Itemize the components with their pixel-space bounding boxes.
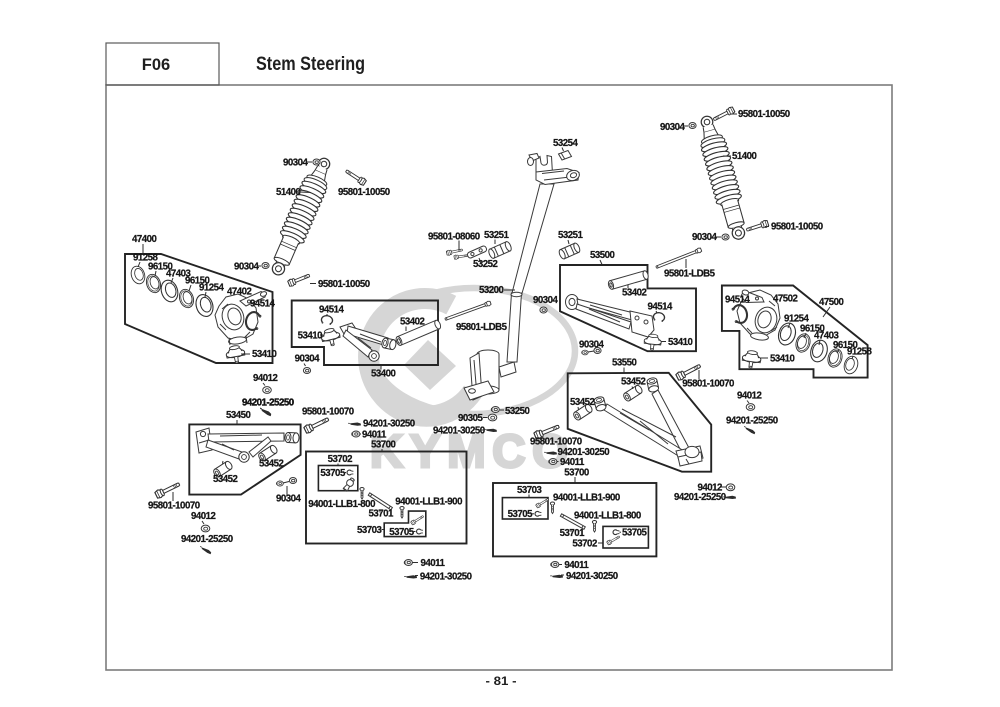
svg-text:94001-LLB1-900: 94001-LLB1-900	[395, 496, 462, 507]
svg-text:53452: 53452	[213, 474, 238, 485]
svg-text:53705: 53705	[622, 528, 648, 539]
svg-text:53702: 53702	[328, 454, 353, 465]
svg-text:53452: 53452	[621, 377, 646, 388]
svg-text:53410: 53410	[252, 349, 277, 360]
svg-text:F06: F06	[142, 56, 170, 74]
svg-text:47500: 47500	[819, 297, 844, 308]
svg-text:90304: 90304	[660, 122, 686, 133]
svg-text:94011: 94011	[421, 558, 446, 569]
svg-text:53702: 53702	[572, 538, 597, 549]
svg-text:- 81 -: - 81 -	[486, 674, 517, 688]
svg-text:94201-25250: 94201-25250	[242, 398, 294, 409]
svg-text:94011: 94011	[560, 457, 585, 468]
svg-text:90304: 90304	[283, 158, 309, 169]
svg-text:47502: 47502	[773, 294, 798, 305]
svg-text:90304: 90304	[276, 494, 302, 505]
svg-text:53251: 53251	[484, 230, 510, 241]
svg-text:53701: 53701	[560, 528, 586, 539]
svg-text:90305: 90305	[458, 413, 484, 424]
svg-text:94201-25250: 94201-25250	[726, 416, 778, 427]
svg-text:51400: 51400	[732, 151, 757, 162]
svg-text:51400: 51400	[276, 187, 301, 198]
svg-text:53402: 53402	[622, 288, 647, 299]
svg-text:47402: 47402	[227, 287, 252, 298]
svg-text:94514: 94514	[648, 301, 674, 312]
svg-text:53410: 53410	[770, 354, 795, 365]
svg-text:53402: 53402	[400, 317, 425, 328]
svg-text:53250: 53250	[505, 406, 530, 417]
svg-text:94201-25250: 94201-25250	[674, 492, 726, 503]
svg-text:94514: 94514	[319, 305, 345, 316]
svg-text:94201-25250: 94201-25250	[181, 534, 233, 545]
svg-text:90304: 90304	[234, 262, 260, 273]
svg-text:91254: 91254	[199, 283, 225, 294]
svg-text:94514: 94514	[725, 295, 751, 306]
svg-text:94001-LLB1-800: 94001-LLB1-800	[308, 499, 375, 510]
svg-text:94201-30250: 94201-30250	[566, 571, 618, 582]
svg-text:53450: 53450	[226, 410, 251, 421]
svg-text:95801-10070: 95801-10070	[148, 501, 200, 512]
svg-text:95801-LDB5: 95801-LDB5	[456, 322, 508, 333]
svg-text:53703: 53703	[517, 485, 543, 496]
svg-text:53705: 53705	[389, 527, 415, 538]
svg-text:53700: 53700	[564, 468, 589, 479]
svg-text:95801-10050: 95801-10050	[318, 279, 370, 290]
svg-text:53550: 53550	[612, 358, 637, 369]
svg-text:53500: 53500	[590, 250, 615, 261]
svg-text:94012: 94012	[253, 373, 278, 384]
svg-text:53705: 53705	[508, 509, 534, 520]
svg-text:53251: 53251	[558, 230, 584, 241]
svg-text:94514: 94514	[250, 299, 276, 310]
svg-text:53705: 53705	[320, 468, 346, 479]
svg-text:53200: 53200	[479, 285, 504, 296]
svg-text:90304: 90304	[533, 295, 559, 306]
svg-text:91258: 91258	[847, 347, 873, 358]
svg-text:53452: 53452	[259, 459, 284, 470]
svg-text:53410: 53410	[668, 337, 693, 348]
svg-text:95801-08060: 95801-08060	[428, 232, 480, 243]
svg-text:47400: 47400	[132, 234, 157, 245]
svg-text:94201-30250: 94201-30250	[363, 419, 415, 430]
svg-text:53452: 53452	[570, 397, 595, 408]
svg-text:53700: 53700	[371, 440, 396, 451]
svg-text:95801-10050: 95801-10050	[338, 187, 390, 198]
svg-text:53254: 53254	[553, 138, 579, 149]
svg-text:Stem Steering: Stem Steering	[256, 54, 365, 75]
svg-text:94012: 94012	[191, 511, 216, 522]
svg-text:53701: 53701	[369, 509, 395, 520]
svg-text:95801-10070: 95801-10070	[530, 437, 582, 448]
svg-text:94001-LLB1-800: 94001-LLB1-800	[574, 510, 641, 521]
svg-text:53252: 53252	[473, 259, 498, 270]
svg-text:94011: 94011	[564, 560, 589, 571]
svg-text:53703: 53703	[357, 525, 383, 536]
svg-text:95801-10070: 95801-10070	[682, 379, 734, 390]
svg-text:90304: 90304	[692, 232, 718, 243]
svg-text:53400: 53400	[371, 369, 396, 380]
svg-text:53410: 53410	[298, 331, 323, 342]
svg-text:95801-10050: 95801-10050	[771, 222, 823, 233]
svg-text:94201-30250: 94201-30250	[433, 426, 485, 437]
svg-text:94201-30250: 94201-30250	[420, 572, 472, 583]
svg-text:94001-LLB1-900: 94001-LLB1-900	[553, 492, 620, 503]
svg-text:94012: 94012	[737, 391, 762, 402]
svg-text:95801-LDB5: 95801-LDB5	[664, 269, 716, 280]
svg-text:95801-10050: 95801-10050	[738, 109, 790, 120]
svg-text:90304: 90304	[295, 354, 321, 365]
svg-text:95801-10070: 95801-10070	[302, 407, 354, 418]
